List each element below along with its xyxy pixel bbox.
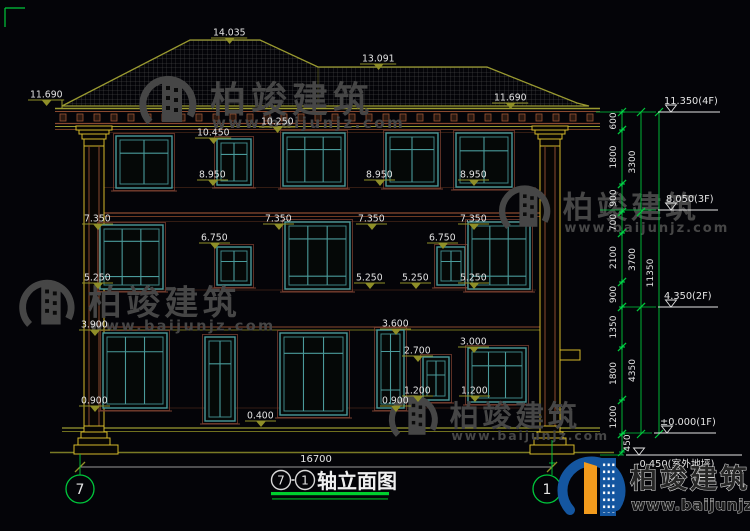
dentil bbox=[77, 114, 83, 121]
dentil bbox=[502, 114, 508, 121]
level-text: 4.350(2F) bbox=[664, 291, 712, 302]
svg-text:3.000: 3.000 bbox=[460, 337, 487, 348]
svg-text:8.950: 8.950 bbox=[460, 170, 487, 181]
dentil bbox=[519, 114, 525, 121]
svg-text:10.450: 10.450 bbox=[197, 128, 230, 139]
window-frame bbox=[283, 133, 345, 186]
window-frame bbox=[103, 333, 167, 408]
dentil bbox=[434, 114, 440, 121]
svg-text:10.250: 10.250 bbox=[261, 117, 294, 128]
svg-text:1.200: 1.200 bbox=[461, 386, 488, 397]
dentil bbox=[128, 114, 134, 121]
dim-text: 2100 bbox=[609, 246, 619, 269]
window bbox=[451, 131, 517, 191]
window-frame bbox=[280, 333, 347, 415]
dim-text: 1800 bbox=[609, 362, 619, 385]
svg-text:1: 1 bbox=[543, 482, 552, 498]
title-axis-to: 1 bbox=[301, 474, 309, 488]
dentil bbox=[451, 114, 457, 121]
site-logo: 柏竣建筑 www.baijunjz.com bbox=[562, 458, 750, 516]
level-markers: 11.350(4F)8.050(3F)4.350(2F)±0.000(1F)-0… bbox=[626, 96, 742, 470]
svg-text:0.900: 0.900 bbox=[81, 396, 108, 407]
svg-text:3.600: 3.600 bbox=[382, 319, 409, 330]
svg-text:5.250: 5.250 bbox=[84, 273, 111, 284]
svg-text:2.700: 2.700 bbox=[404, 346, 431, 357]
svg-text:7.350: 7.350 bbox=[358, 214, 385, 225]
dim-text: 3300 bbox=[628, 150, 638, 173]
dentil bbox=[553, 114, 559, 121]
svg-text:5.250: 5.250 bbox=[402, 273, 429, 284]
dentil bbox=[468, 114, 474, 121]
axis-bubble-7: 7 bbox=[66, 454, 94, 503]
title-axis-from: 7 bbox=[277, 474, 285, 488]
dim-text: 1350 bbox=[609, 315, 619, 338]
elevation-marker-triangle bbox=[256, 421, 266, 427]
drawing-title: 7 1 轴立面图 bbox=[271, 469, 397, 500]
dentil bbox=[485, 114, 491, 121]
svg-text:13.091: 13.091 bbox=[362, 54, 395, 65]
overall-dimension: 16700 bbox=[75, 454, 557, 472]
window bbox=[111, 134, 177, 192]
window bbox=[98, 331, 172, 412]
elevation-label: 11.690 bbox=[28, 90, 64, 107]
elevation-marker-triangle bbox=[365, 283, 375, 289]
dim-text: 700 bbox=[609, 214, 619, 231]
elevation-marker-triangle bbox=[42, 100, 52, 106]
watermark-url: www.baijunjz.com bbox=[90, 317, 276, 334]
logo-building-orange bbox=[584, 462, 597, 514]
svg-text:0.900: 0.900 bbox=[382, 396, 409, 407]
level-text: ±0.000(1F) bbox=[660, 417, 716, 428]
level-triangle bbox=[634, 448, 645, 455]
cad-elevation-drawing: 柏竣建筑 www.baijunjz.com 柏竣建筑 www.baijunjz.… bbox=[0, 0, 750, 531]
svg-text:6.750: 6.750 bbox=[429, 233, 456, 244]
svg-text:7.350: 7.350 bbox=[84, 214, 111, 225]
svg-text:11.690: 11.690 bbox=[30, 90, 63, 101]
dimension-chain: 6001800900700210090013501800120045033003… bbox=[596, 96, 742, 470]
level-marker: ±0.000(1F) bbox=[654, 417, 716, 433]
svg-text:11.690: 11.690 bbox=[494, 93, 527, 104]
window bbox=[275, 331, 352, 419]
title-underline-1 bbox=[271, 492, 389, 495]
svg-text:7.350: 7.350 bbox=[460, 214, 487, 225]
dentil bbox=[111, 114, 117, 121]
watermark-3: 柏竣建筑 www.baijunjz.com bbox=[23, 282, 276, 335]
level-marker: 4.350(2F) bbox=[658, 291, 718, 307]
elevation-marker-triangle bbox=[367, 224, 377, 230]
dentil bbox=[94, 114, 100, 121]
dentil bbox=[196, 114, 202, 121]
watermark-url: www.baijunjz.com bbox=[564, 221, 729, 236]
svg-text:3.900: 3.900 bbox=[81, 320, 108, 331]
svg-text:6.750: 6.750 bbox=[201, 233, 228, 244]
watermark-logo-icon bbox=[23, 282, 72, 325]
svg-text:5.250: 5.250 bbox=[460, 273, 487, 284]
dentil bbox=[587, 114, 593, 121]
level-text: 8.050(3F) bbox=[666, 194, 714, 205]
watermark-url: www.baijunjz.com bbox=[451, 428, 609, 443]
watermark-url: www.baijunjz.com bbox=[212, 114, 405, 132]
svg-text:0.400: 0.400 bbox=[247, 411, 274, 422]
level-text: 11.350(4F) bbox=[664, 96, 718, 107]
level-marker: 11.350(4F) bbox=[658, 96, 720, 112]
logo-url: www.baijunjz.com bbox=[631, 496, 750, 514]
svg-text:8.950: 8.950 bbox=[366, 170, 393, 181]
elevation-label: 7.350 bbox=[356, 214, 387, 231]
title-text: 轴立面图 bbox=[317, 469, 397, 493]
svg-text:8.950: 8.950 bbox=[199, 170, 226, 181]
svg-text:7.350: 7.350 bbox=[265, 214, 292, 225]
dim-text: 3700 bbox=[628, 248, 638, 271]
elevation-marker-triangle bbox=[411, 283, 421, 289]
dim-text: 11350 bbox=[646, 258, 656, 287]
dentil bbox=[536, 114, 542, 121]
dim-text: 1200 bbox=[609, 405, 619, 428]
watermark-4: 柏竣建筑 www.baijunjz.com bbox=[392, 397, 609, 443]
viewport-corner-mark bbox=[5, 8, 25, 27]
dentil bbox=[417, 114, 423, 121]
dim-text: 600 bbox=[609, 112, 619, 129]
dim-text: 450 bbox=[623, 434, 633, 451]
dentil bbox=[570, 114, 576, 121]
dim-text: 1800 bbox=[609, 145, 619, 168]
window bbox=[280, 220, 355, 293]
svg-text:5.250: 5.250 bbox=[356, 273, 383, 284]
dim-text: 4350 bbox=[628, 359, 638, 382]
window-frame bbox=[285, 222, 350, 289]
window bbox=[278, 131, 350, 190]
logo-building-windows bbox=[602, 461, 616, 513]
ledge bbox=[560, 350, 580, 360]
dentil bbox=[60, 114, 66, 121]
overall-dim-text: 16700 bbox=[300, 454, 332, 465]
window bbox=[212, 245, 256, 289]
elevation-label: 5.250 bbox=[354, 273, 385, 290]
dim-text: 900 bbox=[609, 286, 619, 303]
title-underline-2 bbox=[272, 498, 388, 500]
window bbox=[200, 335, 240, 425]
svg-text:14.035: 14.035 bbox=[213, 28, 246, 39]
elevation-label: 5.250 bbox=[400, 273, 431, 290]
elevation-label: 0.400 bbox=[245, 411, 276, 428]
drawing-surface: 柏竣建筑 www.baijunjz.com 柏竣建筑 www.baijunjz.… bbox=[0, 0, 750, 531]
logo-text: 柏竣建筑 bbox=[630, 463, 750, 495]
svg-text:7: 7 bbox=[76, 482, 85, 498]
dim-text: 900 bbox=[609, 189, 619, 206]
elevation-marker-triangle bbox=[413, 356, 423, 362]
